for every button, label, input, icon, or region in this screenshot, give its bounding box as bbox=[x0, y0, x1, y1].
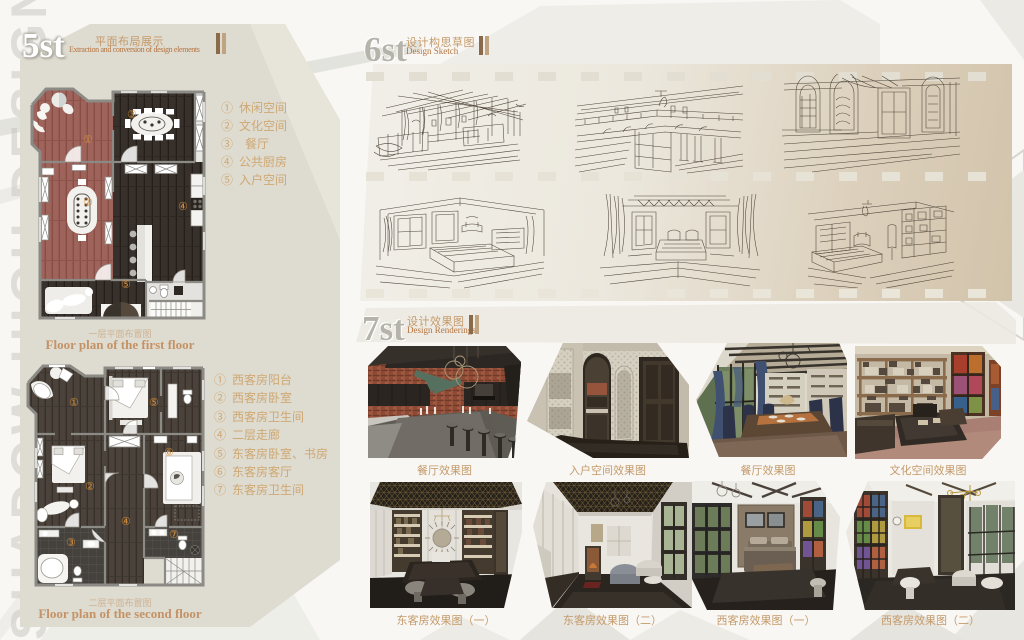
svg-text:④: ④ bbox=[121, 516, 131, 528]
svg-text:④: ④ bbox=[178, 201, 188, 213]
svg-text:⑥: ⑥ bbox=[164, 447, 174, 459]
svg-text:③: ③ bbox=[127, 109, 137, 121]
svg-text:①: ① bbox=[69, 397, 79, 409]
svg-text:⑦: ⑦ bbox=[169, 529, 179, 541]
svg-text:⑤: ⑤ bbox=[149, 397, 159, 409]
svg-text:②: ② bbox=[85, 481, 95, 493]
svg-text:③: ③ bbox=[66, 537, 76, 549]
svg-text:⑤: ⑤ bbox=[121, 279, 131, 291]
svg-text:②: ② bbox=[83, 197, 93, 209]
svg-text:①: ① bbox=[83, 134, 93, 146]
